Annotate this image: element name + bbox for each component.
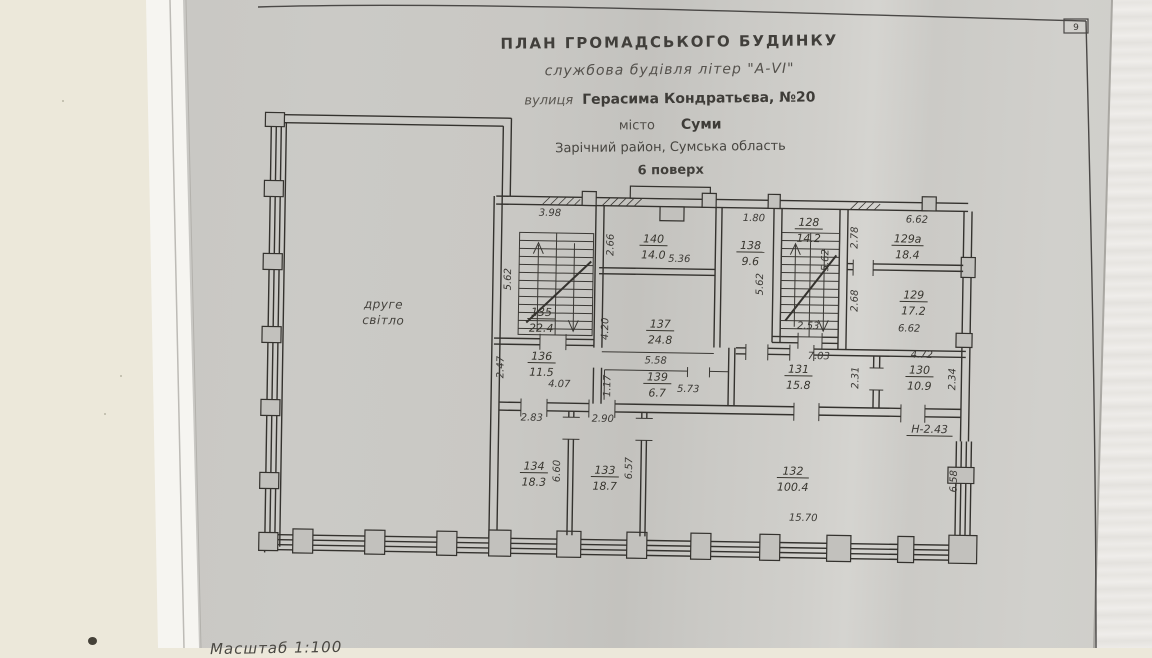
room-number: 137	[650, 317, 671, 330]
room-area: 15.8	[786, 379, 811, 392]
dimension-label: 2.66	[605, 234, 616, 256]
room-area: 11.5	[529, 366, 554, 379]
paper-right-edge	[1094, 0, 1112, 648]
height-note: Н-2.43	[911, 423, 948, 437]
frame-top-line	[258, 5, 1086, 21]
frame-right-line	[1086, 21, 1096, 648]
wall-top-bump	[630, 186, 710, 199]
exterior-walls	[263, 114, 982, 563]
dimension-label: 5.58	[644, 355, 666, 366]
room-number: 140	[643, 232, 664, 245]
floor-plan-svg: 9	[0, 0, 1152, 648]
room-number: 129	[903, 288, 924, 301]
room-number: 133	[594, 464, 615, 477]
open-space-line2: світло	[362, 313, 404, 328]
page-number: 9	[1073, 23, 1079, 33]
staircase-135-symbol	[518, 232, 594, 335]
dimension-label: 6.62	[906, 214, 928, 225]
wall-129a-129	[847, 264, 963, 272]
room-area: 10.9	[907, 380, 932, 393]
dimension-label: 2.47	[495, 355, 506, 378]
room-number: 138	[740, 239, 761, 252]
open-space-label: друге світло	[362, 297, 404, 328]
room-labels: 13522.4 14014.0 1389.6 12814.2 129а18.4 …	[520, 211, 936, 497]
room-area: 18.3	[521, 475, 546, 488]
dimension-label: 6.57	[624, 456, 635, 479]
dimension-label: 3.98	[539, 208, 561, 219]
room-area: 100.4	[777, 480, 809, 493]
dimension-label: 6.62	[898, 323, 920, 334]
pier	[949, 535, 977, 563]
dimension-label: 5.36	[668, 254, 690, 265]
wall-133-132	[640, 412, 647, 536]
pier	[956, 333, 972, 347]
wall-134-133	[567, 411, 574, 535]
wall-131-130	[873, 356, 880, 408]
room-number: 130	[909, 364, 930, 377]
pier	[702, 193, 716, 207]
room-area: 18.4	[895, 248, 920, 261]
pier	[557, 531, 581, 557]
pier	[262, 326, 281, 342]
room-number: 136	[531, 350, 552, 363]
dimension-label: 5.62	[755, 273, 766, 295]
dimension-label: 2.34	[947, 368, 958, 390]
pier	[293, 529, 313, 553]
wall-140-137	[599, 268, 715, 276]
room-area: 18.7	[592, 480, 617, 493]
open-space-line1: друге	[363, 297, 403, 312]
room-number: 139	[647, 370, 668, 383]
room-area: 9.6	[741, 255, 759, 268]
room-area: 22.4	[529, 322, 554, 335]
paper-left-edge	[186, 0, 201, 648]
room-underline	[892, 245, 924, 246]
dimension-label: 2.90	[592, 414, 614, 425]
dimension-label: 2.68	[849, 289, 860, 311]
room-area: 17.2	[901, 304, 926, 317]
sheet-edge-line	[170, 0, 184, 648]
pier	[263, 253, 282, 269]
room-area: 24.8	[648, 333, 673, 346]
room-number: 135	[531, 306, 552, 319]
pier	[264, 180, 283, 196]
room-number: 132	[782, 465, 803, 478]
dimension-label: 1.80	[743, 213, 765, 224]
pier	[827, 535, 851, 561]
wall-135-140	[593, 206, 604, 404]
dimension-label: 2.53	[797, 321, 819, 332]
dimension-label: 1.17	[602, 374, 613, 397]
pier	[760, 534, 780, 560]
dimension-label: 2.83	[521, 412, 543, 423]
pier	[489, 530, 511, 556]
pier	[627, 532, 647, 558]
dimension-label: 2.31	[850, 366, 861, 388]
room-area: 6.7	[648, 386, 666, 399]
wall-top-rooms	[496, 196, 968, 211]
floor-plan: друге світло 13522.4 14014.0 1389.6 1281…	[259, 112, 984, 563]
room-number: 128	[798, 216, 819, 229]
pier	[260, 472, 279, 488]
pier	[259, 532, 278, 550]
dimension-label: 4.07	[548, 379, 571, 390]
pier	[437, 531, 457, 555]
dimension-label: 7.03	[808, 351, 830, 362]
wall-top-openspace	[269, 114, 511, 126]
dimension-label: 5.62	[820, 249, 831, 271]
wall-openspace-divider	[489, 118, 512, 538]
pier	[691, 533, 711, 559]
wall-139-131	[728, 348, 735, 406]
room-underline	[777, 477, 809, 478]
pier	[265, 112, 284, 126]
dimension-label: 6.58	[949, 470, 960, 492]
room-area: 14.2	[796, 232, 821, 245]
room-number: 131	[788, 363, 809, 376]
dimension-label: 2.78	[849, 226, 860, 248]
wall-137-bottom	[602, 352, 714, 354]
room-area: 14.0	[641, 248, 666, 261]
pier	[365, 530, 385, 554]
dimension-label: 5.62	[503, 268, 514, 290]
room-number: 134	[523, 460, 544, 473]
wall-135-136	[494, 338, 594, 346]
dimension-label: 5.73	[677, 384, 699, 395]
pier	[261, 399, 280, 415]
dimension-label: 4.72	[911, 350, 933, 361]
wall-corridor-left	[714, 207, 722, 347]
pier	[768, 194, 780, 208]
wall-right	[960, 211, 972, 441]
dimension-label: 4.20	[600, 318, 611, 340]
pier	[922, 197, 936, 211]
wall-piers	[259, 112, 984, 563]
pier	[961, 257, 975, 277]
room-number: 129а	[894, 232, 922, 245]
dimension-label: 6.60	[552, 460, 563, 482]
dimension-label: 15.70	[789, 513, 818, 524]
pier	[582, 191, 596, 205]
wall-notch	[660, 207, 684, 221]
pier	[898, 536, 914, 562]
